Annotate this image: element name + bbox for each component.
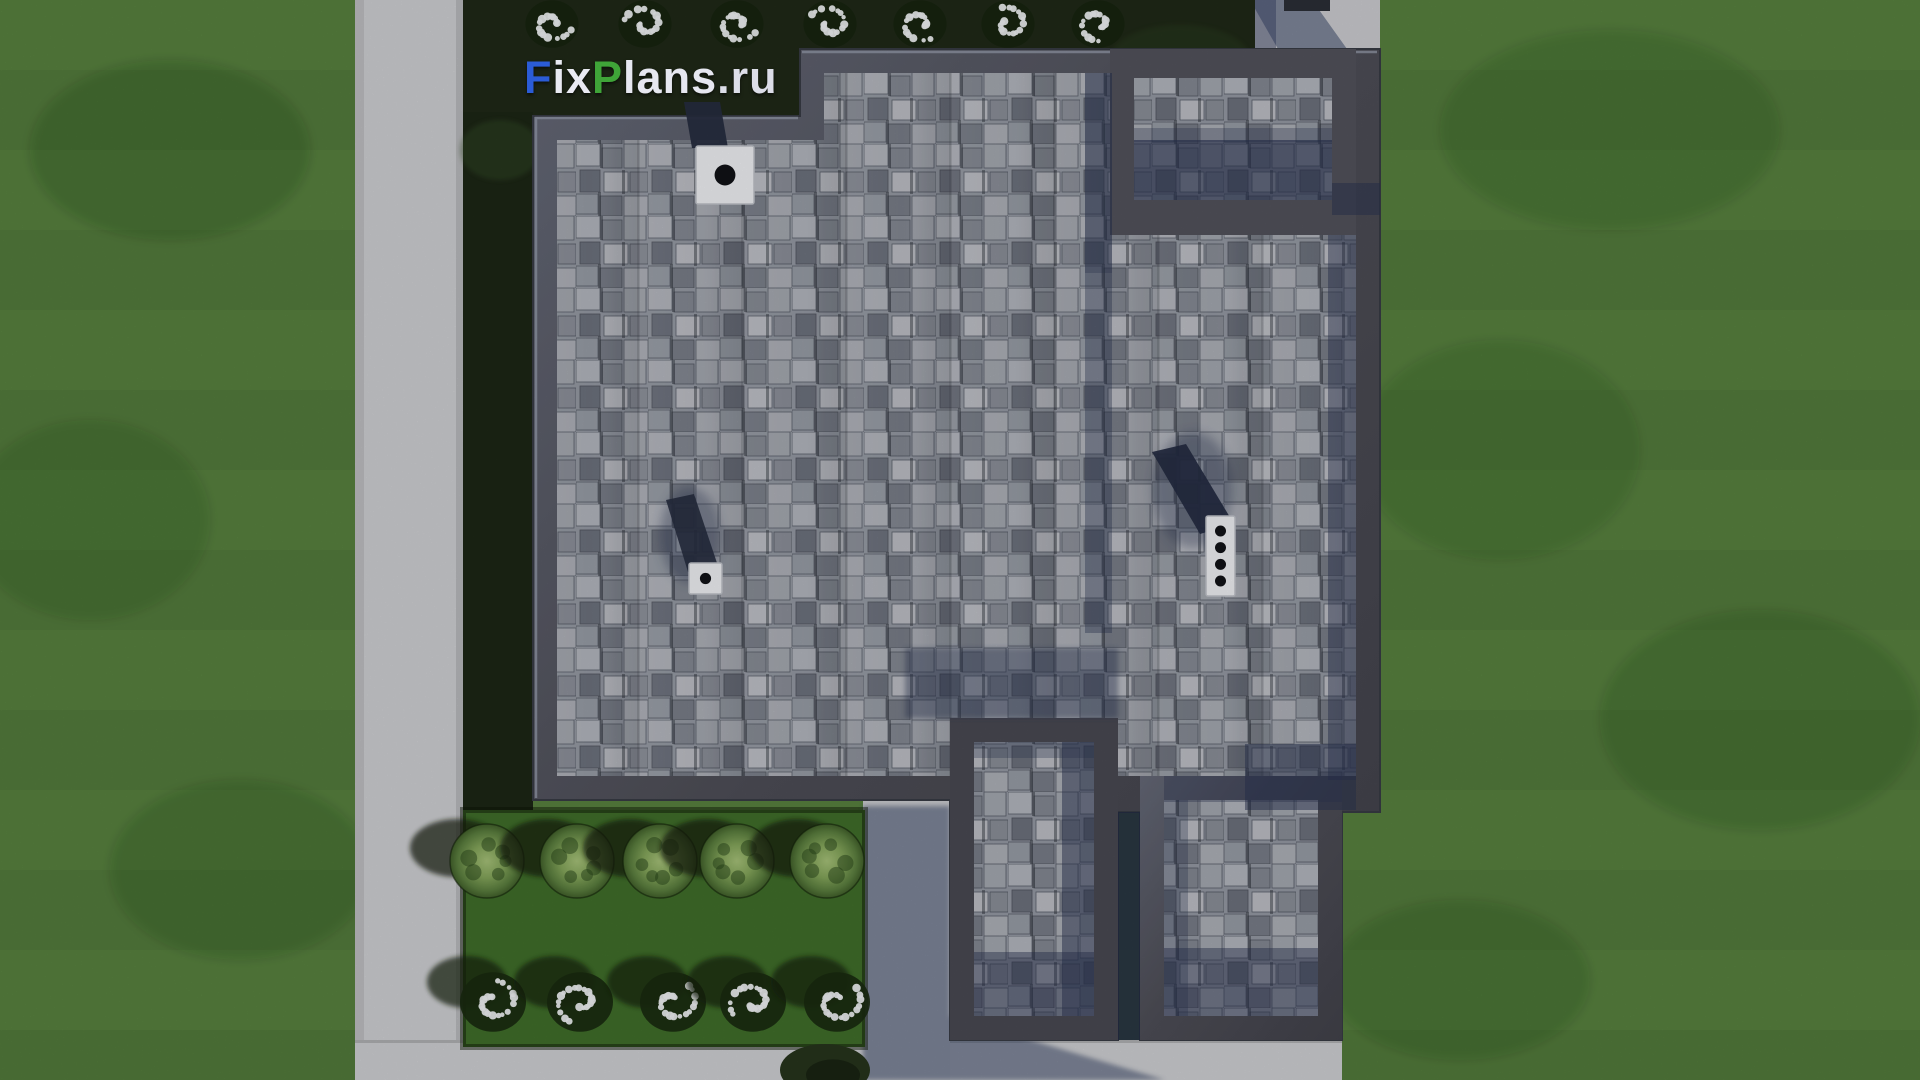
logo-part: F xyxy=(524,52,553,104)
watermark-logo: FixPlans.ru xyxy=(524,52,778,104)
logo-part: ix xyxy=(553,52,593,104)
scene-canvas xyxy=(0,0,1920,1080)
logo-part: P xyxy=(592,52,623,104)
aerial-render-stage: FixPlans.ru xyxy=(0,0,1920,1080)
logo-part: lans xyxy=(623,52,717,104)
logo-part: .ru xyxy=(717,52,778,104)
film-grain xyxy=(0,0,1920,1080)
